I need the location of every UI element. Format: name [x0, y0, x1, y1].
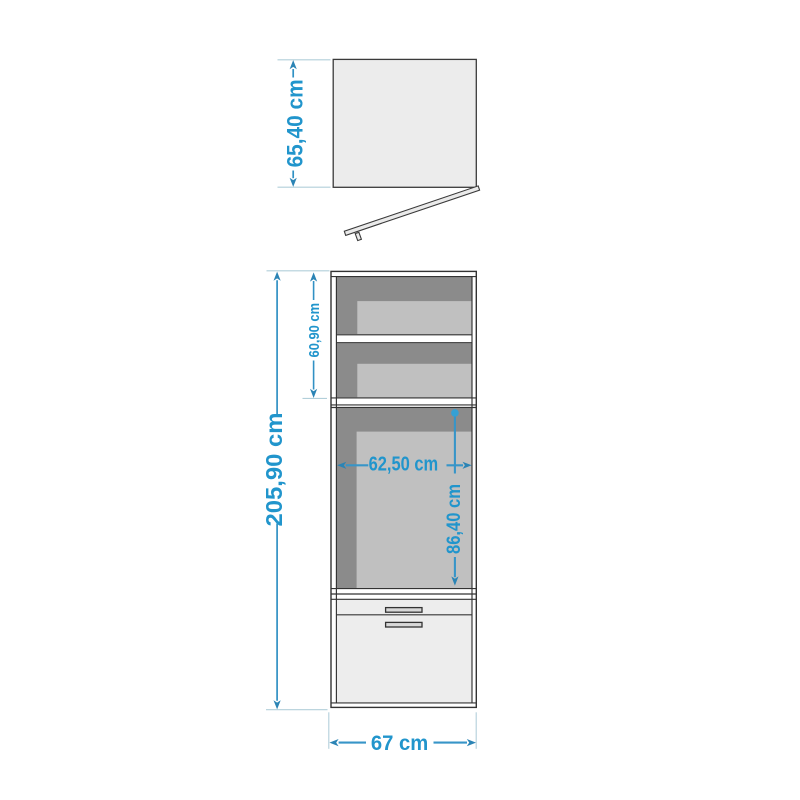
- svg-text:86,40 cm: 86,40 cm: [443, 484, 465, 554]
- svg-text:67 cm: 67 cm: [371, 732, 428, 755]
- svg-text:65,40 cm: 65,40 cm: [283, 79, 308, 167]
- svg-text:205,90 cm: 205,90 cm: [261, 413, 287, 527]
- svg-text:62,50 cm: 62,50 cm: [369, 453, 439, 475]
- svg-text:60,90 cm: 60,90 cm: [306, 303, 323, 358]
